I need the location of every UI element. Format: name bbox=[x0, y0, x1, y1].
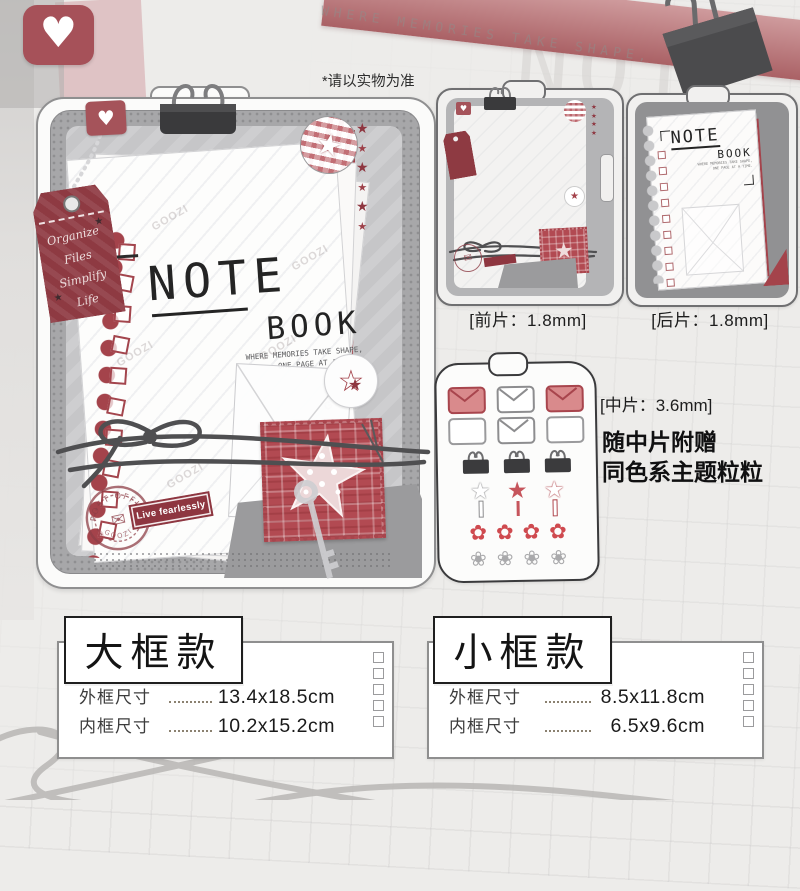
mini-binder-clip-icon bbox=[480, 82, 520, 112]
heart-tab: ♥ bbox=[85, 100, 127, 136]
main-binder-clip-icon bbox=[152, 72, 244, 136]
flower-sticker-outline: ❀ bbox=[523, 548, 540, 568]
star-wand-sticker-red: ★ bbox=[504, 480, 531, 518]
mini-star-column: ★★ ★★ bbox=[591, 104, 597, 136]
envelope-sticker-outline bbox=[497, 417, 535, 445]
binder-clip-sticker bbox=[461, 448, 491, 476]
front-frame-notch bbox=[600, 154, 614, 202]
mini-envelope-outline bbox=[681, 204, 744, 276]
spec-title-small: 小框款 bbox=[433, 616, 612, 684]
spec-label: 内框尺寸 bbox=[79, 712, 169, 737]
spec-value: 10.2x15.2cm bbox=[218, 715, 335, 738]
envelope-sticker-outline bbox=[497, 386, 535, 414]
sheet-tab bbox=[488, 352, 528, 377]
back-paper: NOTE BOOK WHERE MEMORIES TAKE SHAPE, ONE… bbox=[646, 109, 768, 290]
label-text: Live fearlessly bbox=[136, 499, 207, 522]
checkbox-decoration-column bbox=[373, 652, 384, 727]
blank-sticker bbox=[546, 416, 584, 444]
binder-clip-sticker bbox=[502, 448, 532, 476]
back-piece-label: [后片：1.8mm] bbox=[626, 306, 794, 331]
mini-plaid-ball bbox=[564, 100, 586, 122]
star-wand-sticker-outline: ★ bbox=[467, 480, 494, 518]
dotted-leader bbox=[545, 730, 591, 732]
checkbox-decoration-column bbox=[743, 652, 754, 727]
spec-row: 外框尺寸 13.4x18.5cm bbox=[79, 683, 335, 712]
spec-label: 内框尺寸 bbox=[449, 712, 545, 737]
corner-bracket-bottom-right bbox=[743, 175, 754, 186]
flower-sticker-red: ✿ bbox=[469, 523, 487, 544]
star-icon: ★ bbox=[53, 292, 64, 304]
star-column: ★★★ ★★★ bbox=[356, 122, 369, 232]
middle-note-line-2: 同色系主题粒粒 bbox=[602, 457, 763, 487]
flower-sticker-outline: ❀ bbox=[497, 548, 514, 568]
star-icon: ★ bbox=[312, 125, 346, 165]
dotted-leader bbox=[169, 730, 212, 732]
front-piece-label: [前片：1.8mm] bbox=[436, 306, 620, 331]
back-piece-card: NOTE BOOK WHERE MEMORIES TAKE SHAPE, ONE… bbox=[626, 93, 798, 307]
spec-value: 13.4x18.5cm bbox=[218, 686, 335, 709]
corner-bracket-top-left bbox=[660, 130, 671, 141]
spec-label: 外框尺寸 bbox=[79, 683, 169, 708]
dotted-leader bbox=[545, 701, 591, 703]
star-wand-sticker-dotted: ★ bbox=[541, 479, 568, 517]
spec-title-large: 大框款 bbox=[64, 616, 243, 684]
mini-note-title: NOTE bbox=[670, 125, 720, 150]
blank-sticker bbox=[448, 418, 486, 446]
heart-icon: ♥ bbox=[97, 108, 116, 129]
mini-heart-tab: ♥ bbox=[456, 102, 471, 115]
spec-row: 内框尺寸 10.2x15.2cm bbox=[79, 712, 335, 741]
middle-note-line-1: 随中片附赠 bbox=[602, 427, 763, 457]
spec-row: 外框尺寸 8.5x11.8cm bbox=[449, 683, 705, 712]
flower-sticker-outline: ❀ bbox=[470, 549, 487, 569]
tag-eyelet bbox=[62, 194, 81, 213]
flower-sticker-red: ✿ bbox=[549, 521, 567, 542]
flower-sticker-outline: ❀ bbox=[550, 547, 567, 567]
spec-value: 8.5x11.8cm bbox=[597, 686, 705, 709]
dotted-leader bbox=[169, 701, 212, 703]
binder-clip-sticker bbox=[543, 447, 573, 475]
middle-piece-label: [中片：3.6mm] bbox=[600, 391, 712, 416]
flower-sticker-red: ✿ bbox=[496, 522, 514, 543]
envelope-sticker-filled bbox=[545, 385, 583, 413]
spec-row: 内框尺寸 6.5x9.6cm bbox=[449, 712, 705, 741]
mini-star-sticker: ★ bbox=[564, 186, 585, 207]
envelope-sticker-filled bbox=[448, 387, 486, 415]
front-piece-card: ♥ ★★ ★★ ★ ★ ✉ bbox=[436, 88, 624, 306]
middle-piece-note: 随中片附赠 同色系主题粒粒 bbox=[602, 427, 763, 487]
flower-sticker-red: ✿ bbox=[522, 522, 540, 543]
spec-value: 6.5x9.6cm bbox=[597, 715, 705, 738]
envelope-icon: ✉ bbox=[109, 509, 127, 532]
spec-label: 外框尺寸 bbox=[449, 683, 545, 708]
middle-piece-sticker-sheet: ★ ★ ★ ✿ ✿ ✿ ✿ ❀ ❀ ❀ ❀ bbox=[434, 361, 600, 584]
